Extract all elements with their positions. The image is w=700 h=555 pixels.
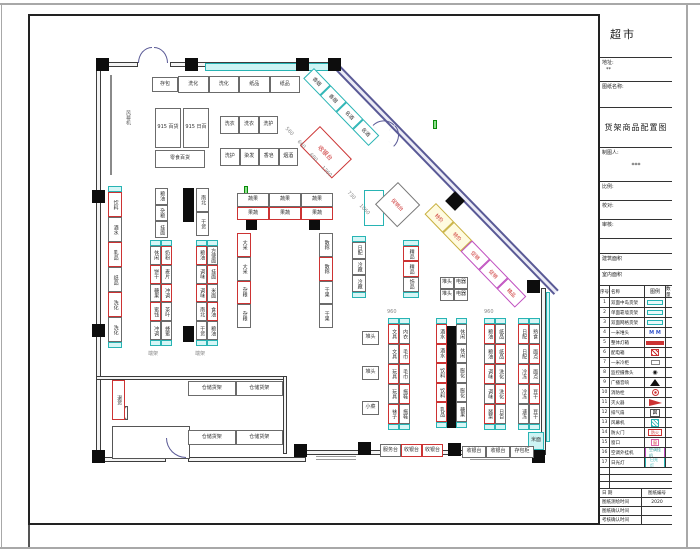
annotation-text: 风幕机 (125, 110, 132, 125)
shelf-cell: 南北 (196, 302, 207, 321)
shelf-cell: 冷藏 (352, 275, 366, 292)
shelf-cell: 堆头 (362, 366, 379, 380)
shelf-cell: 纸品 (270, 76, 301, 93)
spacer-row (600, 475, 672, 482)
pinkbox-icon: 窗 (651, 439, 659, 447)
shelf-cell: 饮料 (436, 363, 447, 383)
legend-icon-cell: 防火 (645, 428, 666, 437)
shelf-cell: 大米 (237, 257, 251, 281)
legend-qty (666, 438, 672, 447)
shelf-cell: 豆干 (529, 384, 540, 404)
legend-icon-cell (645, 298, 666, 307)
shelf-cell: 零食百货 (155, 150, 205, 168)
shelf-cell: 纸品 (495, 324, 506, 344)
shelf: 大米大米杂粮杂粮 (237, 233, 251, 328)
footer-label: 图纸测绘时间 (600, 498, 642, 506)
shelf: 方便面挂面米面食油粮油 (207, 240, 218, 346)
shelf: 蔬果蔬果蔬果 (237, 193, 333, 207)
footer-label: 考核确认时间 (600, 516, 642, 524)
shelf: 小菜 (362, 401, 379, 415)
legend-row: 13风幕机 (600, 418, 672, 428)
shelf-cell: 堆头 (440, 277, 454, 289)
shelf-cell: 冷冻 (518, 384, 529, 404)
shelf-endcap (150, 340, 161, 346)
circ-icon (652, 389, 659, 396)
shelf-cell: 洗衣 (220, 116, 239, 134)
column (296, 58, 309, 71)
legend-icon-cell: M M (645, 328, 666, 337)
legend-no: 15 (600, 438, 610, 447)
shelf-cell: 日百 (495, 404, 506, 424)
shelf-cell: 挂面 (155, 221, 168, 238)
shelf: 堆头电器 (440, 277, 468, 289)
shelf-cell: 蔬果 (301, 193, 333, 207)
page: { "title_block": { "store_name": "超市", "… (0, 0, 700, 555)
shelf-cell: 玩具 (388, 364, 399, 384)
shelf: 粮油杂粮挂面 (155, 188, 168, 238)
legend-header-icon: 图例 (645, 286, 666, 297)
shelf-cell: 麦片 (161, 265, 172, 284)
shelf-cell: 洗化 (495, 364, 506, 384)
mm-icon: M M (649, 330, 661, 336)
shelf-cell: 调味 (196, 284, 207, 303)
shelf-cell: 干货 (196, 212, 209, 236)
shelf-cell: 米面 (207, 284, 218, 303)
legend-row: 3双面网格货架 (600, 318, 672, 328)
column (92, 190, 105, 203)
shelf-cell: 干货 (196, 321, 207, 340)
legend-name: 一米冷柜 (610, 358, 645, 367)
shelf-endcap (529, 424, 540, 430)
scale-row: 比例: (600, 182, 672, 201)
legend-qty (666, 368, 672, 377)
shelf-cell: 酒水 (108, 217, 122, 242)
spacer-row (600, 468, 672, 475)
annotation-text: 960 (484, 309, 494, 315)
shelf-cell: 乳品 (108, 242, 122, 267)
shelf-cell: 速冻 (518, 404, 529, 424)
plan: 存包洗化洗化纸品纸品915 百货915 日百零食百货洗衣洗衣洗护洗护染发香皂烟酒… (0, 0, 700, 555)
legend-row: 14防火门防火 (600, 428, 672, 438)
gbox-icon (651, 360, 660, 365)
shelf-cell: 饮料 (436, 383, 447, 403)
shelf-cell: 纸品 (495, 344, 506, 364)
shelf-cell: 仓储货架 (188, 430, 236, 445)
legend-icon-cell: 囱 (645, 408, 666, 417)
mgbox-icon: 空调挂机 (645, 448, 665, 457)
legend-row: 10消防栓 (600, 388, 672, 398)
legend-row: 6配电箱 (600, 348, 672, 358)
shelf-cell: 精品 (403, 261, 419, 276)
legend-icon-cell (645, 338, 666, 347)
shelf-cell: 存包柜 (510, 446, 534, 458)
legend-name: 风幕机 (610, 418, 645, 427)
shelf-endcap (352, 292, 366, 298)
legend-row: 16空调外挂机空调挂机 (600, 448, 672, 458)
drafter-label: 制图人: (602, 149, 619, 156)
shelf-cell: 电器 (454, 277, 468, 289)
shelf-cell: 粮油 (484, 324, 495, 344)
legend-name: 防火门 (610, 428, 645, 437)
shelf: 熟食面点面点豆干豆干 (529, 318, 540, 430)
shelf-cell: 退货 (112, 380, 125, 420)
shelf-cell: 粮油 (155, 188, 168, 205)
legend-no: 10 (600, 388, 610, 397)
shelf: 915 百货 (155, 108, 181, 148)
shelf-cell: 粮油 (484, 344, 495, 364)
legend-qty (666, 388, 672, 397)
legend-no: 16 (600, 448, 610, 457)
legend-qty (666, 458, 672, 467)
shelf-cell: 拖鞋 (399, 404, 410, 424)
shelf-endcap (456, 422, 467, 428)
shelf-cell: 日配 (518, 324, 529, 344)
legend-row: 7一米冷柜 (600, 358, 672, 368)
scale-label: 比例: (602, 183, 614, 190)
shelf-endcap (484, 424, 495, 430)
shelf: 洗衣洗衣洗护 (220, 116, 278, 134)
rectc-icon (647, 320, 663, 325)
shelf-cell: 存包 (152, 77, 178, 92)
shelf-cell: 收银台 (401, 444, 422, 457)
store-name: 超市 (600, 14, 672, 58)
legend-row: 8监控摄像头◉ (600, 368, 672, 378)
shelf-cell: 收银台 (462, 446, 486, 458)
shelf: 日配日配冷冻冷冻速冻 (518, 318, 529, 430)
shelf-cell: 内衣 (399, 324, 410, 344)
column (183, 326, 194, 342)
legend-icon-cell (645, 398, 666, 407)
footer-label: 日 期 (600, 489, 642, 497)
shelf-cell: 冲调 (150, 321, 161, 340)
shelf-cell: 酱菜 (484, 404, 495, 424)
legend-icon-cell (645, 358, 666, 367)
shelf-cell: 文具 (388, 324, 399, 344)
shelf-cell: 收银台 (486, 446, 510, 458)
legend-no: 12 (600, 408, 610, 417)
shelf-cell: 洗化 (178, 76, 209, 93)
shelf: 内衣毛巾毛巾拖鞋拖鞋 (399, 318, 410, 430)
legend-icon-cell: 空调挂机 (645, 448, 666, 457)
shelf-cell: 挂面 (207, 265, 218, 284)
shelf-cell: 毛巾 (399, 344, 410, 364)
interior-area-label: 室内面积 (602, 271, 622, 278)
legend-name: 日光灯 (610, 458, 645, 467)
shelf: 果蔬果蔬果蔬 (237, 207, 333, 220)
legend-rows: 1双面中岛货架2单面靠墙货架3双面网格货架4一米堆头M M5整体灯箱6配电箱7一… (600, 298, 672, 468)
shelf-cell: 仓储货架 (236, 430, 284, 445)
footer-label: 图纸确认时间 (600, 507, 642, 515)
column (185, 58, 198, 71)
shelf-cell: 饮料 (108, 192, 122, 217)
shelf-cell: 调味 (196, 265, 207, 284)
check-label: 校对: (602, 202, 614, 209)
shelf-cell: 蜜饯 (150, 302, 161, 321)
legend-name: 配电箱 (610, 348, 645, 357)
column (294, 444, 307, 457)
legend-name: 双面中岛货架 (610, 298, 645, 307)
footer-value: 2020 (642, 500, 672, 505)
shelf: 日配冷藏冷藏 (352, 236, 366, 298)
annotation-text: 端架 (195, 350, 205, 357)
shelf-cell: 干果 (319, 281, 333, 305)
shelf-cell: 干果 (319, 304, 333, 328)
spacer-row (600, 482, 672, 489)
legend-header: 序号 名称 图例 数量 (600, 286, 672, 298)
legend-row: 5整体灯箱 (600, 338, 672, 348)
shelf-cell: 熟食 (529, 324, 540, 344)
shelf-cell: 饰品 (403, 277, 419, 292)
shelf-endcap (161, 340, 172, 346)
legend-qty (666, 378, 672, 387)
legend-row: 9广播音响 (600, 378, 672, 388)
shelf-cell: 粮油 (207, 321, 218, 340)
shelf-cell: 糖果 (150, 284, 161, 303)
legend-name: 空调外挂机 (610, 448, 645, 457)
shelf-cell: 方便面 (207, 246, 218, 265)
legend-row: 15窗口窗 (600, 438, 672, 448)
shelf-cell: 玩具 (388, 384, 399, 404)
shelf-endcap (388, 424, 399, 430)
rhatch-icon (651, 349, 659, 356)
shelf-cell: 膨化 (456, 363, 467, 383)
footer-row: 日 期图纸编号 (600, 489, 672, 498)
shelf-cell: 散称 (319, 233, 333, 257)
footer-value: 图纸编号 (642, 490, 672, 496)
legend-name: 整体灯箱 (610, 338, 645, 347)
shelf-cell: 糖果 (456, 402, 467, 422)
legend-name: 监控摄像头 (610, 368, 645, 377)
shelf-cell: 洗护 (220, 148, 240, 166)
legend-qty (666, 428, 672, 437)
shelf-cell: 面点 (529, 364, 540, 384)
shelf-cell: 纸品 (108, 267, 122, 292)
shelf-cell: 膨化 (456, 383, 467, 403)
legend-row: 11灭火器 (600, 398, 672, 408)
cyan-strip (546, 292, 550, 442)
interior-area-row: 室内面积 (600, 270, 672, 286)
shelf: 仓储货架仓储货架 (188, 381, 283, 396)
shelf-endcap (495, 424, 506, 430)
legend-icon-cell (645, 308, 666, 317)
shelf-cell: 食油 (207, 302, 218, 321)
thin-strip (110, 75, 112, 175)
shelf-cell: 香皂 (259, 148, 279, 166)
drawing-name-label-row: 图纸名称: (600, 82, 672, 108)
shelf-cell: 奶粉 (161, 246, 172, 265)
legend-no: 2 (600, 308, 610, 317)
shelf-cell: 杂粮 (237, 304, 251, 328)
door-arc (154, 47, 168, 63)
shelf: 洗护染发香皂烟酒 (220, 148, 298, 166)
shelf-cell: 染发 (240, 148, 260, 166)
building-area-row: 建筑面积 (600, 254, 672, 270)
column (92, 324, 105, 337)
shelf-endcap (207, 340, 218, 346)
shelf: 散称散称干果干果 (319, 233, 333, 328)
column (309, 219, 320, 230)
rbox-icon: 防火 (648, 429, 662, 437)
shelf-cell: 茶叶 (161, 302, 172, 321)
shelf-cell: 酒水 (436, 344, 447, 364)
legend-qty (666, 328, 672, 337)
annotation-text: 端架 (148, 350, 158, 357)
drawing-name: 货架商品配置图 (600, 108, 672, 148)
shelf-cell: 南北 (196, 188, 209, 212)
legend-no: 9 (600, 378, 610, 387)
shelf: 精品精品饰品 (403, 240, 419, 298)
shelf-cell: 精品 (403, 246, 419, 261)
legend-no: 17 (600, 458, 610, 467)
legend-qty (666, 308, 672, 317)
shelf-cell: 休闲 (456, 344, 467, 364)
legend-qty (666, 338, 672, 347)
shelf-cell: 堆头 (362, 331, 379, 345)
shelf-cell: 纸品 (239, 76, 270, 93)
legend-row: 2单面靠墙货架 (600, 308, 672, 318)
door-arc (138, 47, 152, 63)
legend-no: 1 (600, 298, 610, 307)
column (527, 280, 540, 293)
legend-no: 7 (600, 358, 610, 367)
shelf-cell: 酒水 (436, 324, 447, 344)
shelf: 奶粉麦片冲调茶叶蜂蜜 (161, 240, 172, 346)
shelf-cell: 冷冻 (518, 364, 529, 384)
shelf-cell: 散称 (319, 257, 333, 281)
address-value: ** (606, 67, 611, 73)
shelf-cell: 毛巾 (399, 364, 410, 384)
column (183, 188, 194, 222)
legend-no: 11 (600, 398, 610, 407)
shelf-cell: 洗化 (209, 76, 240, 93)
legend-no: 6 (600, 348, 610, 357)
legend-name: 广播音响 (610, 378, 645, 387)
shelf: 文具文具玩具玩具袜子 (388, 318, 399, 430)
shelf: 休闲休闲膨化膨化糖果 (456, 318, 467, 428)
title-block: 超市 地址: ** 图纸名称: 货架商品配置图 制图人: *** 比例: 校对:… (598, 14, 672, 525)
column (358, 442, 371, 455)
dimension-text: 560 (284, 126, 295, 137)
cyanbox-icon: 日光灯 (645, 458, 665, 467)
legend-no: 4 (600, 328, 610, 337)
shelf-cell: 洗化 (108, 292, 122, 317)
shelf: 纸品纸品洗化洗化日百 (495, 318, 506, 430)
shelf: 收银台收银台存包柜 (462, 446, 534, 458)
shelf-cell: 收银台 (422, 444, 443, 457)
legend-icon-cell (645, 378, 666, 387)
green-strip (433, 120, 437, 129)
legend-icon-cell (645, 388, 666, 397)
shelf-cell: 烟酒 (279, 148, 299, 166)
legend-qty (666, 348, 672, 357)
footer-row: 图纸确认时间 (600, 507, 672, 516)
shelf-cell: 洗化 (495, 384, 506, 404)
shelf: 南北干货 (196, 188, 209, 236)
check-row: 校对: (600, 201, 672, 220)
wall (283, 376, 287, 454)
shelf-cell: 乳品 (436, 402, 447, 422)
legend-icon-cell: 窗 (645, 438, 666, 447)
shelf-cell: 杂粮 (155, 205, 168, 222)
shelf-cell: 915 日百 (183, 108, 209, 148)
shelf: 零食百货 (155, 150, 205, 168)
rectc-icon (647, 300, 663, 305)
shelf-cell: 洗衣 (239, 116, 258, 134)
shelf-cell: 饼干 (150, 265, 161, 284)
dimension-text: 730 (346, 190, 357, 201)
column (246, 219, 257, 230)
legend-name: 灭火器 (610, 398, 645, 407)
legend-qty (666, 298, 672, 307)
legend-row: 17日光灯日光灯 (600, 458, 672, 468)
legend-qty (666, 418, 672, 427)
shelf-cell: 小菜 (362, 401, 379, 415)
shelf-cell: 休闲 (456, 324, 467, 344)
legend-row: 4一米堆头M M (600, 328, 672, 338)
legend-qty (666, 358, 672, 367)
shelf-cell: 果蔬 (301, 207, 333, 220)
shelf: 粮油粮油调味调味酱菜 (484, 318, 495, 430)
address-label: 地址: (602, 59, 614, 66)
shelf-cell: 调味 (484, 364, 495, 384)
shelf-cell: 电器 (454, 289, 468, 301)
shelf-cell: 915 百货 (155, 108, 181, 148)
legend-row: 1双面中岛货架 (600, 298, 672, 308)
shelf: 堆头 (362, 331, 379, 345)
shelf-endcap (436, 422, 447, 428)
wall (188, 457, 306, 462)
shelf-cell: 服务台 (380, 444, 401, 457)
legend-name: 双面网格货架 (610, 318, 645, 327)
wall (96, 62, 101, 462)
column (92, 450, 105, 463)
legend-name: 消防栓 (610, 388, 645, 397)
shelf-cell: 调味 (484, 384, 495, 404)
shelf-cell: 洗化 (108, 317, 122, 342)
shelf: 服务台收银台收银台 (380, 444, 443, 457)
legend-header-name: 名称 (610, 286, 645, 297)
shelf: 洗化洗化纸品纸品 (178, 76, 300, 93)
empty-row (600, 239, 672, 254)
column (447, 326, 456, 428)
tri-icon (650, 379, 660, 386)
rectc-icon (647, 310, 663, 315)
column (448, 443, 461, 456)
shelf: 堆头电器 (440, 289, 468, 301)
legend-icon-cell: ◉ (645, 368, 666, 377)
cam-icon: ◉ (652, 370, 657, 376)
legend-icon-cell (645, 348, 666, 357)
legend-qty (666, 318, 672, 327)
flag-icon (649, 399, 662, 406)
legend-icon-cell: 日光灯 (645, 458, 666, 467)
shelf: 堆头 (362, 366, 379, 380)
review-label: 审核: (602, 221, 614, 228)
footer-rows: 日 期图纸编号图纸测绘时间2020图纸确认时间考核确认时间 (600, 489, 672, 525)
legend-icon-cell (645, 318, 666, 327)
legend-no: 14 (600, 428, 610, 437)
legend-qty (666, 448, 672, 457)
column (96, 58, 109, 71)
shelf: 休闲饼干糖果蜜饯冲调 (150, 240, 161, 346)
shelf-endcap (399, 424, 410, 430)
annotation-text: 960 (387, 309, 397, 315)
legend-no: 8 (600, 368, 610, 377)
shelf-cell: 休闲 (150, 246, 161, 265)
shelf-cell: 蜂蜜 (161, 321, 172, 340)
shelf: 酒水酒水饮料饮料乳品 (436, 318, 447, 428)
address-row: 地址: ** (600, 58, 672, 82)
